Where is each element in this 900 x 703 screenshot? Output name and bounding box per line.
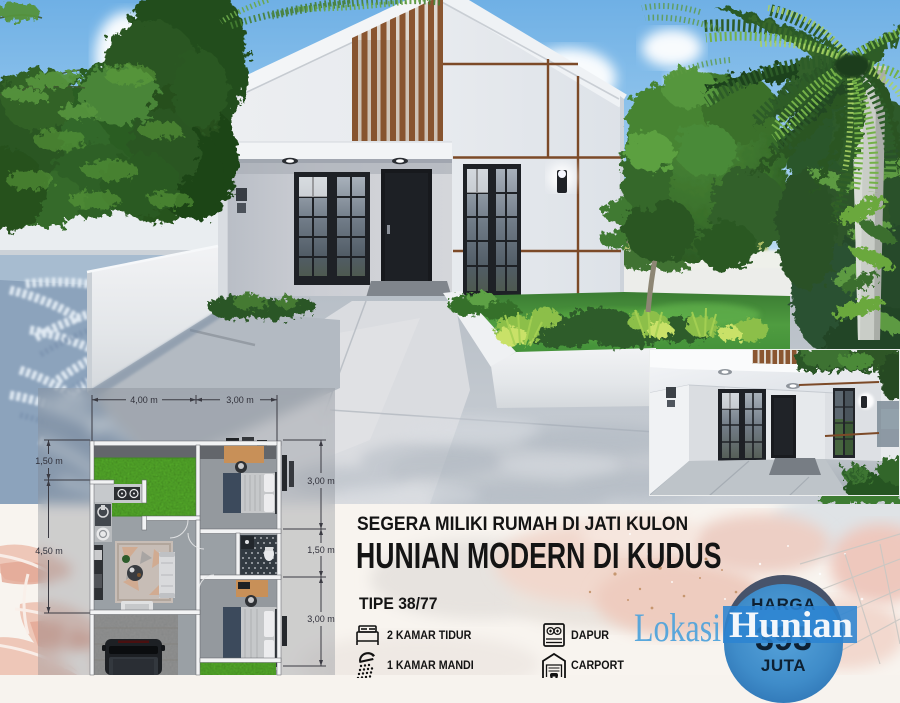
- svg-text:4,50 m: 4,50 m: [35, 546, 63, 556]
- svg-text:3,00 m: 3,00 m: [226, 395, 254, 405]
- svg-text:4,00 m: 4,00 m: [130, 395, 158, 405]
- svg-text:1,50 m: 1,50 m: [307, 545, 335, 555]
- svg-text:3,00 m: 3,00 m: [307, 614, 335, 624]
- svg-text:3,00 m: 3,00 m: [307, 476, 335, 486]
- svg-text:1,50 m: 1,50 m: [35, 456, 63, 466]
